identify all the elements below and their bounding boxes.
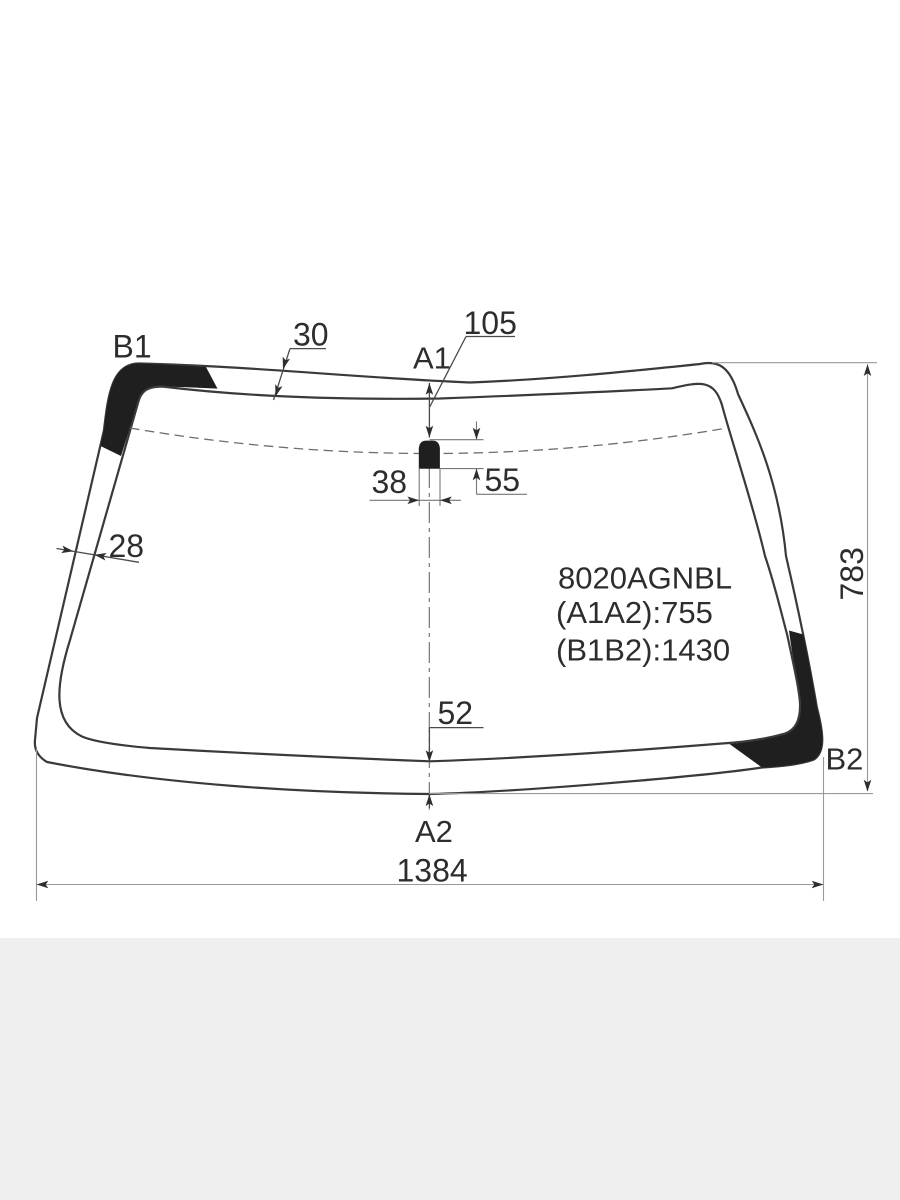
svg-text:B2: B2 [826,742,864,777]
svg-text:A2: A2 [415,814,453,849]
svg-text:(A1A2):755: (A1A2):755 [556,595,713,630]
svg-text:55: 55 [485,462,521,498]
svg-text:30: 30 [293,317,329,353]
svg-text:52: 52 [438,695,474,731]
svg-text:38: 38 [372,464,408,500]
svg-text:1384: 1384 [397,853,468,889]
svg-text:(B1B2):1430: (B1B2):1430 [556,633,730,668]
svg-text:B1: B1 [113,329,152,365]
svg-text:783: 783 [834,547,870,600]
svg-text:8020AGNBL: 8020AGNBL [558,561,732,596]
svg-text:A1: A1 [413,341,451,376]
svg-text:28: 28 [109,528,145,564]
svg-text:105: 105 [464,305,517,341]
